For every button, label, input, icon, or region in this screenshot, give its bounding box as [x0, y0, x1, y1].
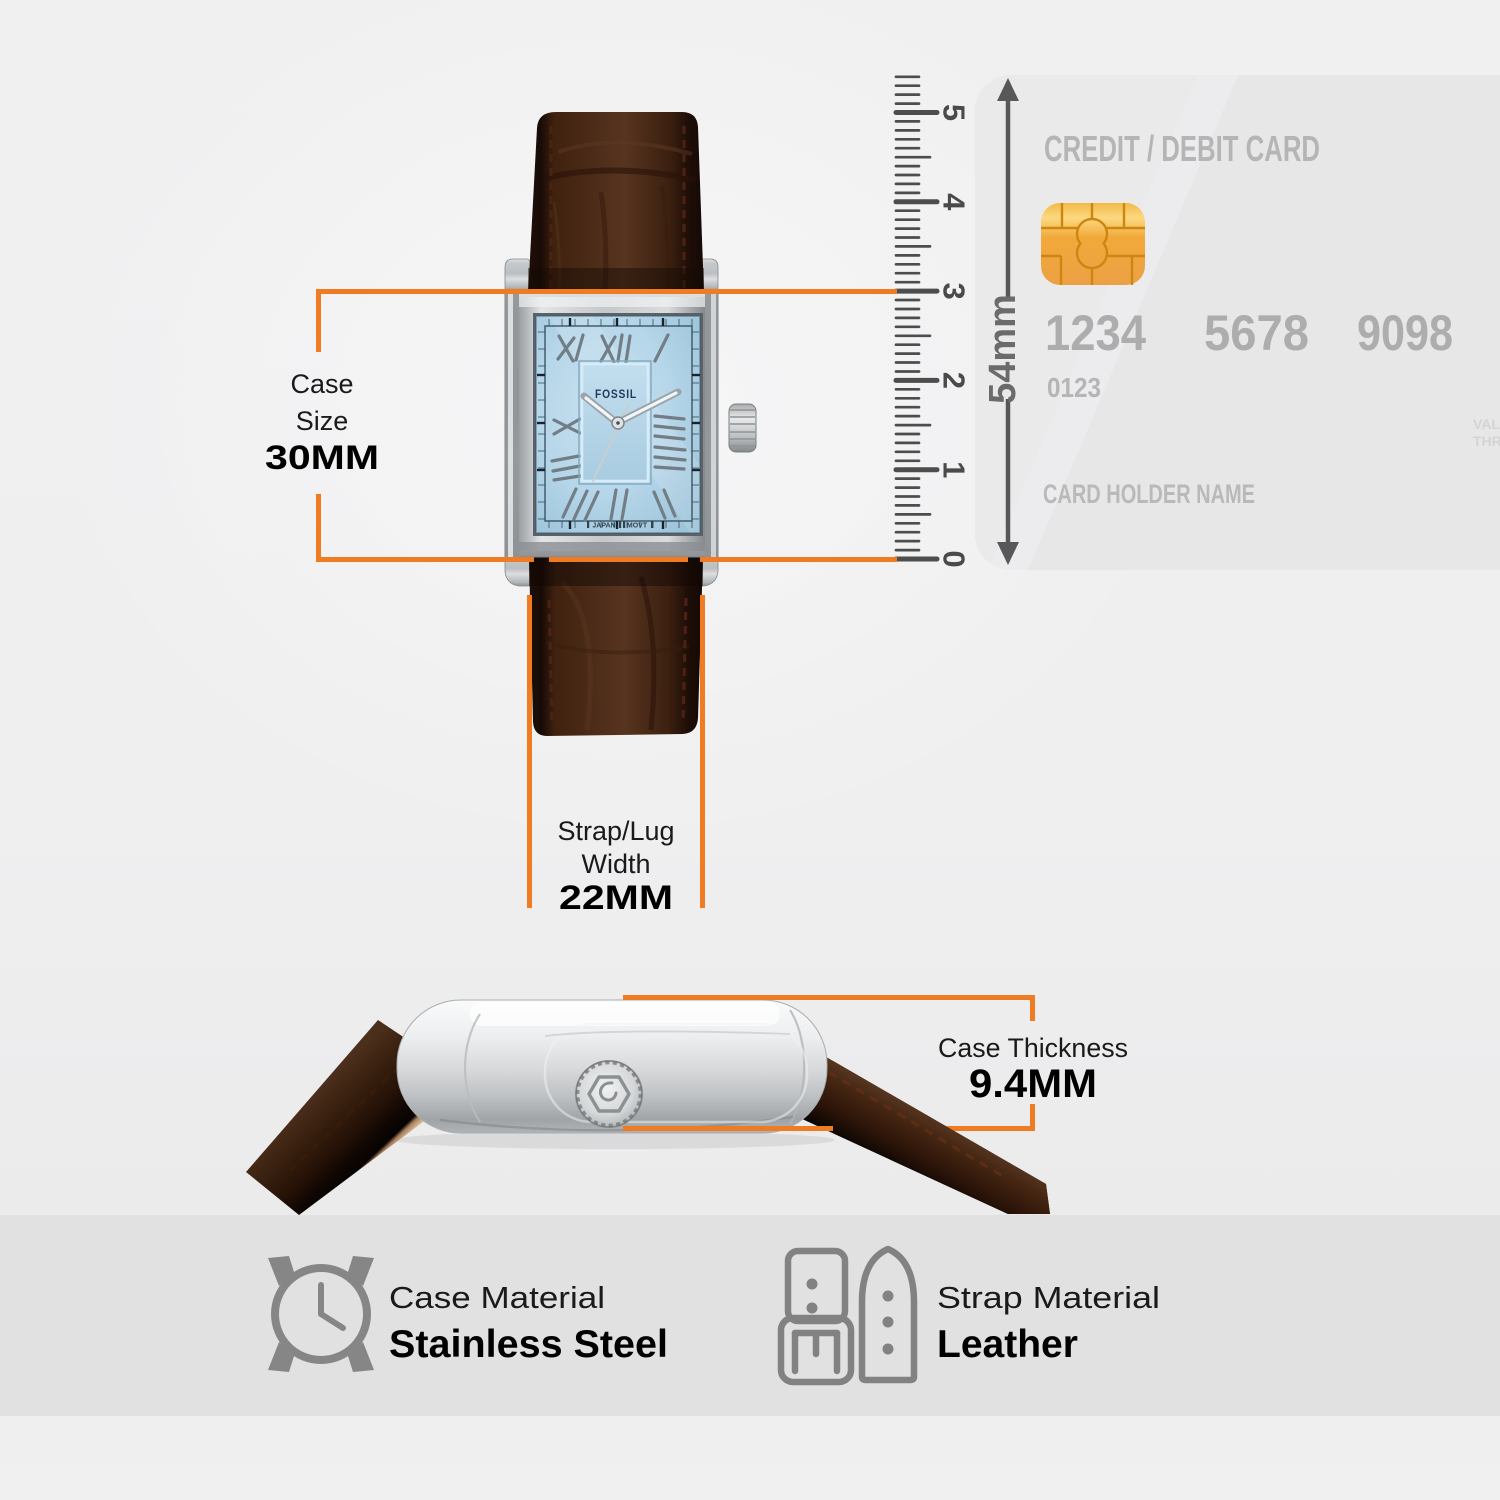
svg-text:9.4MM: 9.4MM — [969, 1062, 1097, 1106]
svg-text:1: 1 — [937, 461, 972, 478]
svg-text:THR: THR — [1473, 433, 1500, 449]
svg-text:4: 4 — [937, 193, 972, 211]
svg-text:Size: Size — [296, 406, 349, 436]
svg-text:3: 3 — [937, 282, 972, 299]
svg-text:Width: Width — [581, 849, 650, 879]
svg-text:5678: 5678 — [1204, 305, 1309, 361]
svg-text:54mm: 54mm — [982, 294, 1024, 404]
svg-text:Stainless Steel: Stainless Steel — [389, 1323, 668, 1366]
svg-text:MOVT: MOVT — [627, 523, 648, 530]
svg-text:1234: 1234 — [1045, 305, 1146, 361]
svg-text:0123: 0123 — [1047, 372, 1101, 403]
svg-text:Case Material: Case Material — [389, 1280, 605, 1315]
svg-text:22MM: 22MM — [559, 879, 673, 917]
svg-text:Strap Material: Strap Material — [937, 1280, 1160, 1315]
svg-text:9098: 9098 — [1357, 305, 1453, 361]
svg-text:CREDIT / DEBIT CARD: CREDIT / DEBIT CARD — [1044, 128, 1320, 169]
svg-text:Case: Case — [290, 369, 353, 399]
svg-text:Leather: Leather — [937, 1323, 1078, 1366]
svg-text:0: 0 — [937, 550, 972, 567]
svg-text:Case Thickness: Case Thickness — [938, 1033, 1128, 1063]
svg-text:JAPAN: JAPAN — [592, 523, 615, 530]
svg-text:CARD HOLDER NAME: CARD HOLDER NAME — [1043, 479, 1255, 509]
svg-text:FOSSIL: FOSSIL — [595, 387, 637, 401]
svg-text:5: 5 — [937, 104, 972, 121]
svg-text:VAL: VAL — [1473, 416, 1500, 432]
svg-text:2: 2 — [937, 372, 972, 389]
svg-text:Strap/Lug: Strap/Lug — [557, 816, 674, 846]
svg-text:30MM: 30MM — [265, 439, 379, 477]
